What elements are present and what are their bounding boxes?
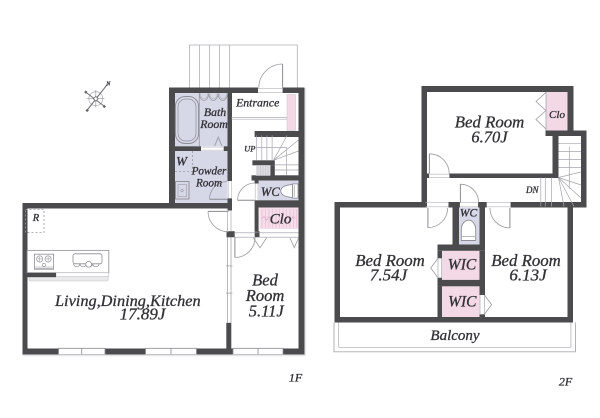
svg-text:WC: WC xyxy=(460,208,478,220)
svg-text:WIC: WIC xyxy=(448,257,477,274)
svg-text:2F: 2F xyxy=(559,375,573,389)
svg-text:Balcony: Balcony xyxy=(430,328,479,344)
svg-text:R: R xyxy=(32,213,40,224)
svg-text:6.70J: 6.70J xyxy=(471,128,508,147)
svg-text:5.11J: 5.11J xyxy=(249,302,285,321)
svg-text:WIC: WIC xyxy=(448,294,477,311)
svg-text:Room: Room xyxy=(199,117,228,131)
svg-text:Clo: Clo xyxy=(549,109,565,121)
svg-text:Room: Room xyxy=(195,178,222,190)
svg-text:DN: DN xyxy=(525,185,539,195)
svg-text:Entrance: Entrance xyxy=(235,96,279,110)
svg-text:7.54J: 7.54J xyxy=(370,266,409,285)
svg-text:Clo: Clo xyxy=(270,212,292,228)
svg-text:Powder: Powder xyxy=(191,165,227,177)
svg-text:6.13J: 6.13J xyxy=(509,266,548,285)
svg-text:W: W xyxy=(176,154,188,169)
svg-text:UP: UP xyxy=(244,143,255,153)
svg-text:17.89J: 17.89J xyxy=(120,305,167,324)
svg-text:1F: 1F xyxy=(289,371,303,385)
svg-text:WC: WC xyxy=(261,185,280,199)
